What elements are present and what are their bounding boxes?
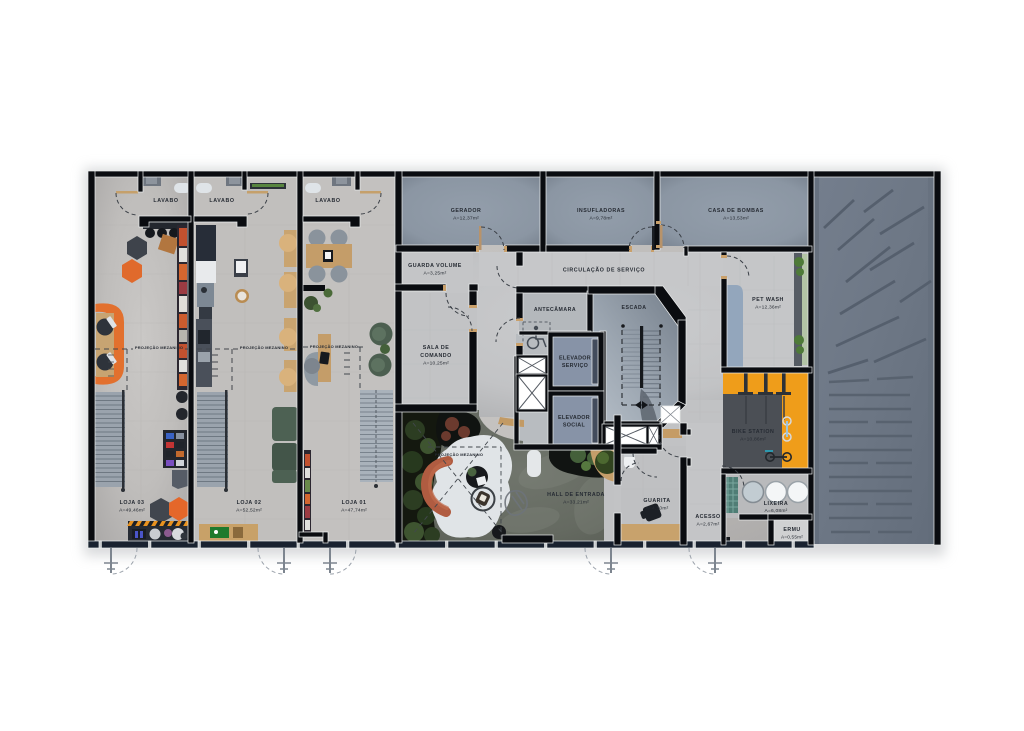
svg-text:A=0,55m²: A=0,55m² xyxy=(781,535,803,540)
svg-text:GUARDA VOLUME: GUARDA VOLUME xyxy=(408,263,462,269)
svg-text:ESCADA: ESCADA xyxy=(622,305,647,311)
svg-text:HALL DE ENTRADA: HALL DE ENTRADA xyxy=(547,492,605,498)
svg-text:PROJEÇÃO MEZANINO: PROJEÇÃO MEZANINO xyxy=(135,345,183,350)
svg-text:A=4,50m²: A=4,50m² xyxy=(646,506,669,512)
svg-text:GUARITA: GUARITA xyxy=(643,498,670,504)
svg-text:A=12,36m²: A=12,36m² xyxy=(755,305,781,311)
svg-text:ELEVADOR: ELEVADOR xyxy=(558,415,590,421)
svg-text:A=52,52m²: A=52,52m² xyxy=(236,508,262,514)
svg-text:A=13,53m²: A=13,53m² xyxy=(723,216,749,222)
svg-text:PROJEÇÃO MEZANINO: PROJEÇÃO MEZANINO xyxy=(310,344,358,349)
svg-text:A=33,21m²: A=33,21m² xyxy=(563,500,589,506)
svg-text:PROJEÇÃO MEZANINO: PROJEÇÃO MEZANINO xyxy=(240,345,288,350)
svg-text:ACESSO: ACESSO xyxy=(695,514,720,520)
svg-text:LOJA 01: LOJA 01 xyxy=(342,500,367,506)
svg-text:A=9,78m²: A=9,78m² xyxy=(590,216,613,222)
svg-text:PET WASH: PET WASH xyxy=(752,297,784,303)
svg-text:A=10,25m²: A=10,25m² xyxy=(423,361,449,367)
svg-text:A=3,25m²: A=3,25m² xyxy=(424,271,447,277)
svg-text:INSUFLADORAS: INSUFLADORAS xyxy=(577,208,625,214)
svg-text:ERMU: ERMU xyxy=(783,527,800,533)
svg-text:A=2,67m²: A=2,67m² xyxy=(697,522,720,528)
svg-text:COMANDO: COMANDO xyxy=(420,353,451,359)
svg-text:ELEVADOR: ELEVADOR xyxy=(559,356,591,362)
svg-text:PROJEÇÃO MEZANINO: PROJEÇÃO MEZANINO xyxy=(435,452,483,457)
svg-text:SOCIAL: SOCIAL xyxy=(563,423,586,429)
svg-text:LOJA 02: LOJA 02 xyxy=(237,500,262,506)
svg-text:CIRCULAÇÃO DE SERVIÇO: CIRCULAÇÃO DE SERVIÇO xyxy=(563,267,645,274)
svg-text:LAVABO: LAVABO xyxy=(153,198,178,204)
svg-text:A=47,74m²: A=47,74m² xyxy=(341,508,367,514)
svg-text:LAVABO: LAVABO xyxy=(209,198,234,204)
svg-text:ANTECÂMARA: ANTECÂMARA xyxy=(534,306,576,313)
svg-text:SERVIÇO: SERVIÇO xyxy=(562,363,588,369)
svg-text:BIKE STATION: BIKE STATION xyxy=(732,429,775,435)
svg-text:A=10,86m²: A=10,86m² xyxy=(740,437,766,443)
svg-text:A=49,46m²: A=49,46m² xyxy=(119,508,145,514)
svg-text:LAVABO: LAVABO xyxy=(315,198,340,204)
svg-text:SALA DE: SALA DE xyxy=(423,345,450,351)
svg-text:LOJA 03: LOJA 03 xyxy=(120,500,145,506)
svg-text:A=6,08m²: A=6,08m² xyxy=(765,508,788,514)
svg-text:A=12,37m²: A=12,37m² xyxy=(453,216,479,222)
svg-text:CASA DE BOMBAS: CASA DE BOMBAS xyxy=(708,208,764,214)
svg-text:GERADOR: GERADOR xyxy=(451,208,482,214)
svg-text:LIXEIRA: LIXEIRA xyxy=(764,501,788,507)
